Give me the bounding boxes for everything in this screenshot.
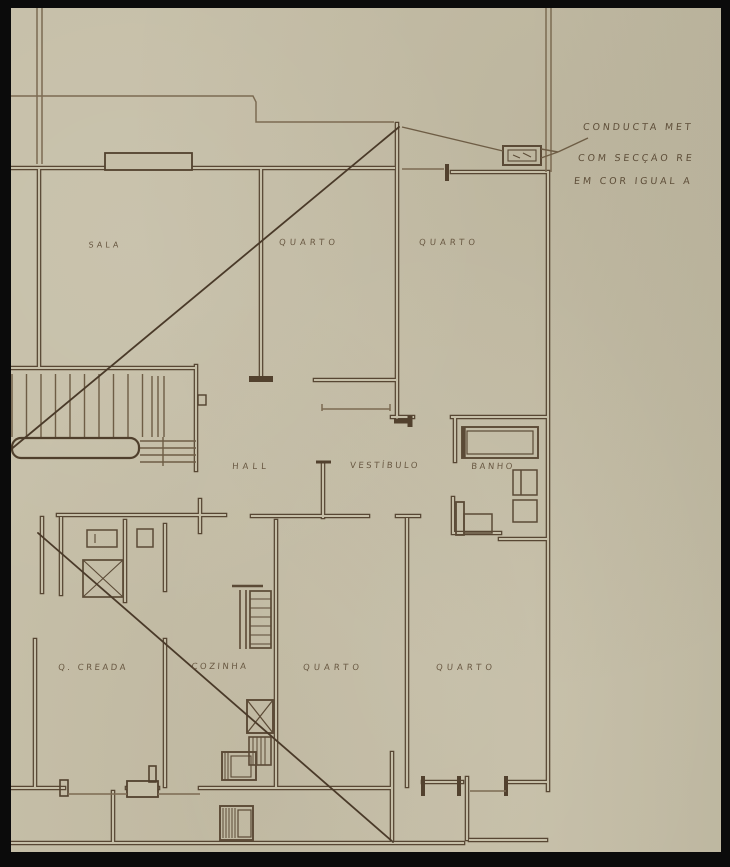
washbasin [464,514,492,533]
thin-lines [11,8,551,794]
staircase [12,374,196,466]
service-table [87,530,117,547]
leader-lines [402,127,588,158]
room-label-vestibulo: VESTÍBULO [350,461,421,471]
room-label-hall: HALL [232,462,270,472]
room-label-banho: BANHO [471,462,515,472]
toilet [513,470,537,495]
bidet [513,500,537,522]
room-label-q-creada: Q. CREADA [58,663,129,673]
annotation-line-3: EM COR IGUAL A [574,176,694,187]
fixtures [83,146,541,840]
section-diagonals [3,127,399,842]
frame-left-strip [0,0,11,867]
flue-box [249,737,271,765]
metal-duct-box [503,146,541,165]
room-label-sala: SALA [88,241,121,250]
room-label-cozinha: COZINHA [191,662,249,672]
kitchen-shelves [232,586,271,649]
room-label-quarto-2: QUARTO [419,238,480,248]
floorplan-scan: SALA QUARTO QUARTO HALL VESTÍBULO BANHO … [0,0,730,867]
frame-top-strip [0,0,730,8]
frame-right-strip [721,0,730,867]
balcony-fixture [220,806,253,840]
walls-outer [11,124,548,843]
frame-bottom-strip [0,852,730,867]
room-label-quarto-4: QUARTO [436,663,497,673]
annotation-line-1: CONDUCTA MET [583,122,694,133]
annotation-line-2: COM SECÇÃO RE [578,153,695,164]
walls-inner [11,124,548,843]
room-label-quarto-3: QUARTO [303,663,364,673]
wall-caps [60,153,506,797]
room-label-quarto-1: QUARTO [279,238,340,248]
bathtub [462,427,538,458]
